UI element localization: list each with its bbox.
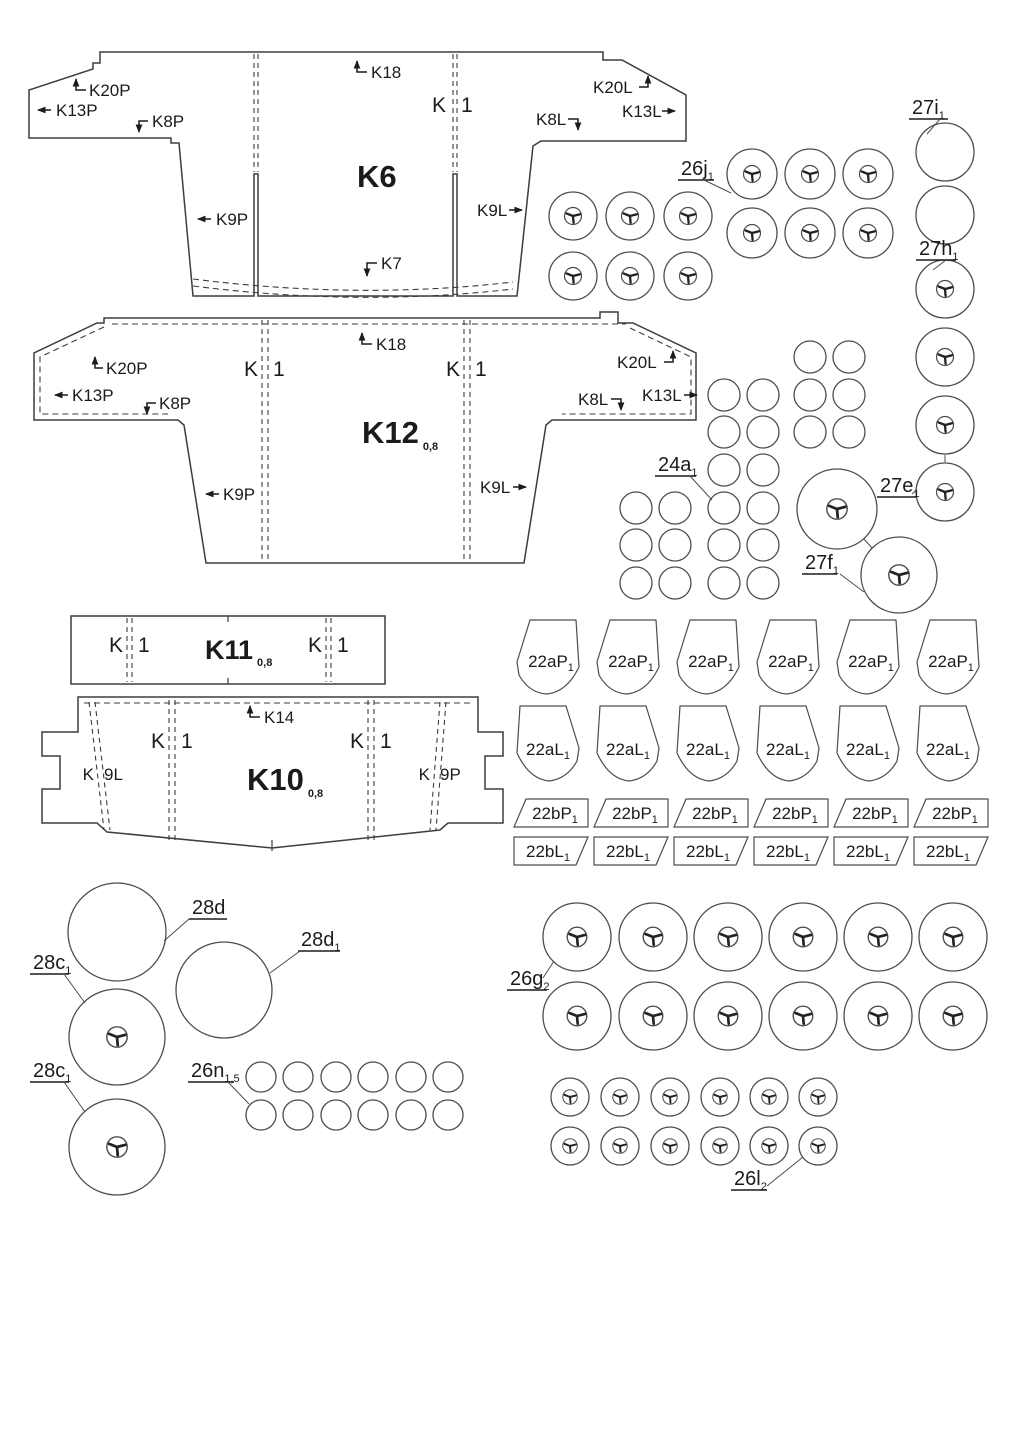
k12-fold-slot-right [464,320,470,561]
k18-label: K18 [376,335,406,354]
part-label-28d1-leader [270,951,300,973]
k8p-label: K8P [159,394,191,413]
k20p-label: K20P [89,81,131,100]
part-label-26j-leader [704,180,731,193]
k11-fold-right [326,618,331,682]
panel-k6-title: K6 [357,159,397,194]
part-label-22bP: 22bP1 [852,804,898,826]
k11-slot1-label-right: 1 [138,634,150,657]
part-label-22aL: 22aL1 [526,740,570,762]
panel-k11: K110,8 K 1 K 1 [71,616,385,684]
k9l-label: K9L [480,478,510,497]
k8l-arrow [611,399,621,410]
k10-slot1-label-right: 1 [181,730,193,753]
k6-slot-label-left: K [432,94,446,117]
k12-slot2-label-left: K [446,358,460,381]
panel-k10: K100,8 K14 K 1 K 1 K 9L K 9P [42,697,503,851]
k8p-arrow [147,403,156,414]
part-label-22aP: 22aP1 [848,652,894,674]
part-label-22bP: 22bP1 [692,804,738,826]
k20p-arrow [76,79,86,90]
k10-glue-left-label-b: 9L [104,765,123,784]
k12-slot1-label-left: K [244,358,258,381]
k18-arrow [362,333,372,344]
k20p-arrow [95,357,103,368]
part-label-26n-leader [228,1082,249,1104]
k6-curve-guides [193,279,513,297]
k7-arrow [367,263,377,276]
part-row-22aL: 22aL1 22aL1 22aL1 22aL1 22aL1 22aL1 [517,706,979,781]
wheel-set-26j: 26j1 [549,149,893,300]
part-label-24a-leader [690,476,712,500]
part-row-22bL: 22bL1 22bL1 22bL1 22bL1 22bL1 22bL1 [514,837,988,865]
part-label-22bP: 22bP1 [612,804,658,826]
disc-set-26n: 26n1,5 [188,1060,463,1130]
k20p-label: K20P [106,359,148,378]
k18-arrow [357,61,367,72]
k8p-arrow [139,121,148,132]
k10-slot1-label-left: K [151,730,165,753]
k14-arrow [250,706,260,717]
part-label-28c-2-leader [64,1082,85,1112]
wheel-set-27h: 27h1 [916,238,974,318]
k18-label: K18 [371,63,401,82]
part-label-28c-1-leader [64,974,85,1003]
panel-k6: K6 K 1 K18 K20P K13P K8P K9P K9L K7 K8L … [29,52,686,297]
wheel-set-27e: 27e1 [877,328,974,521]
part-label-22aP: 22aP1 [608,652,654,674]
part-row-22aP: 22aP1 22aP1 22aP1 22aP1 22aP1 22aP1 [517,620,979,694]
wheel-set-28c: 28c1 28c1 [30,952,165,1195]
panel-k11-title: K110,8 [205,635,272,669]
k6-slot-label-right: 1 [461,94,473,117]
part-label-22bP: 22bP1 [932,804,978,826]
k9p-label: K9P [223,485,255,504]
part-label-22aP: 22aP1 [528,652,574,674]
part-label-26g-leader [543,961,554,978]
k10-fold-slot-left [169,700,175,840]
part-label-22bL: 22bL1 [926,842,970,864]
k20l-arrow [639,76,648,87]
k6-fold-slot-left [254,54,258,172]
k12-slot2-label-right: 1 [475,358,487,381]
part-label-28d: 28d [192,897,225,919]
k10-slot2-label-right: 1 [380,730,392,753]
k9p-label: K9P [216,210,248,229]
part-label-22aL: 22aL1 [766,740,810,762]
k20l-arrow [664,351,673,362]
panel-k12: K120,8 K 1 K 1 K18 K20P K13P K8P K9P K9L… [34,312,697,563]
part-label-22aP: 22aP1 [688,652,734,674]
k20l-label: K20L [617,353,657,372]
disc-set-27i: 27i1 [909,97,974,244]
k10-glue-right-label-b: 9P [440,765,461,784]
k8p-label: K8P [152,112,184,131]
k13p-label: K13P [72,386,114,405]
part-label-22aP: 22aP1 [928,652,974,674]
k13p-label: K13P [56,101,98,120]
part-label-22bL: 22bL1 [686,842,730,864]
k8l-arrow [568,119,578,130]
part-label-22aL: 22aL1 [686,740,730,762]
wheel-set-26l: 26l2 [551,1078,837,1193]
k12-slot1-label-right: 1 [273,358,285,381]
k10-glue-right-label-a: K [419,765,431,784]
k14-label: K14 [264,708,294,727]
panel-k10-title: K100,8 [247,762,323,800]
k11-slot2-label-right: 1 [337,634,349,657]
part-label-28d-leader [164,919,189,941]
k10-fold-slot-right [368,700,374,842]
k10-slot2-label-left: K [350,730,364,753]
part-label-22aP: 22aP1 [768,652,814,674]
part-label-26l-leader [767,1157,803,1186]
part-label-22aL: 22aL1 [846,740,890,762]
disc-set-28d: 28d 28d1 [68,883,341,1038]
wheel-set-26g: 26g2 [507,903,987,1050]
k13l-label: K13L [622,102,662,121]
k9l-label: K9L [477,201,507,220]
part-label-22bL: 22bL1 [526,842,570,864]
k11-slot2-label-left: K [308,634,322,657]
part-label-22aL: 22aL1 [606,740,650,762]
panel-k12-title: K120,8 [362,415,438,453]
k12-fold-slot-left [262,320,268,561]
part-label-22bP: 22bP1 [772,804,818,826]
part-label-27i-leader [927,119,940,134]
k7-label: K7 [381,254,402,273]
part-row-22bP: 22bP1 22bP1 22bP1 22bP1 22bP1 22bP1 [514,799,988,827]
part-label-22bL: 22bL1 [606,842,650,864]
part-label-22bL: 22bL1 [846,842,890,864]
k8l-label: K8L [578,390,608,409]
k8l-label: K8L [536,110,566,129]
k11-fold-left [127,618,132,682]
sheet-drawing: K6 K 1 K18 K20P K13P K8P K9P K9L K7 K8L … [0,0,1024,1448]
part-label-22bP: 22bP1 [532,804,578,826]
k13l-label: K13L [642,386,682,405]
part-label-22bL: 22bL1 [766,842,810,864]
wheel-27f-connector [864,539,872,548]
k10-glue-left-label-a: K [83,765,95,784]
parts-sheet: K6 K 1 K18 K20P K13P K8P K9P K9L K7 K8L … [0,0,1024,1448]
k20l-label: K20L [593,78,633,97]
k11-slot1-label-left: K [109,634,123,657]
k6-fold-slot-right [453,54,457,172]
part-label-22aL: 22aL1 [926,740,970,762]
